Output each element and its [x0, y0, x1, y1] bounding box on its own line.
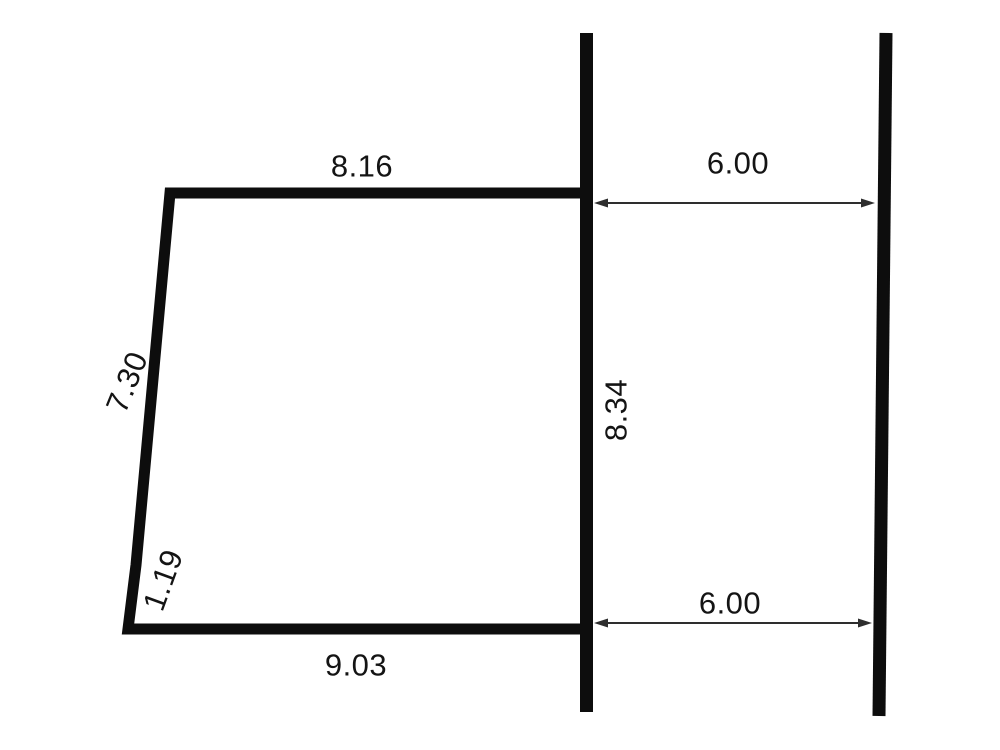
dimension-label-center-line: 8.34 [601, 379, 632, 441]
dimension-label-top-gap: 6.00 [707, 148, 769, 179]
top-dimension-arrow [594, 199, 875, 208]
right-vertical-line [879, 33, 886, 716]
dimension-label-top-edge: 8.16 [331, 151, 393, 182]
diagram-drawing [0, 0, 1000, 750]
diagram-canvas: 8.16 6.00 7.30 8.34 1.19 9.03 6.00 [0, 0, 1000, 750]
dimension-label-bottom-edge: 9.03 [325, 650, 387, 681]
dimension-label-bottom-gap: 6.00 [699, 588, 761, 619]
parcel-outline [128, 193, 592, 629]
